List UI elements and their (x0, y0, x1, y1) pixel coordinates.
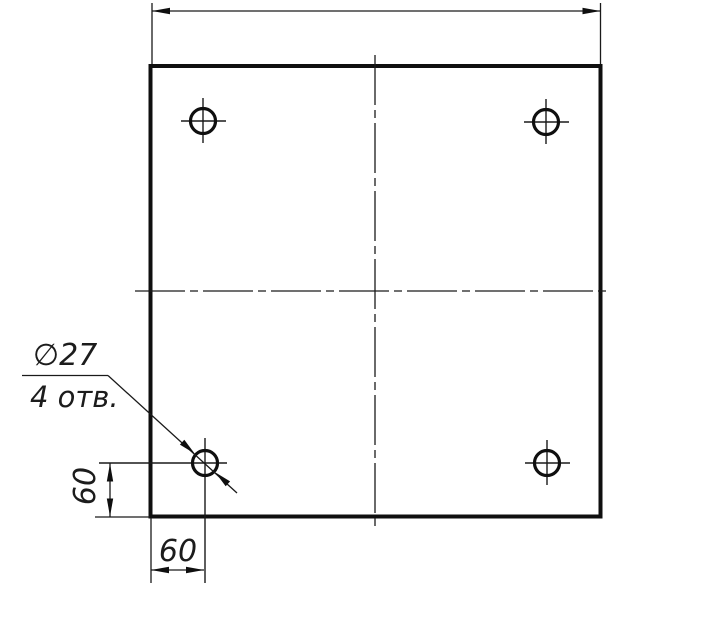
hole-top-left (181, 98, 226, 143)
arrowhead-right-icon (583, 8, 601, 14)
arrowhead-left-icon (152, 8, 170, 14)
dimension-top-width (152, 3, 601, 66)
dimension-value-bottom: 60 (159, 534, 197, 569)
hole-top-right (524, 99, 569, 144)
technical-drawing-canvas: ∅27 4 отв. 60 60 (0, 0, 713, 631)
dimension-left-offset-60: 60 (68, 463, 150, 517)
dimension-value-left: 60 (68, 467, 103, 505)
plate-drawing: ∅27 4 отв. 60 60 (0, 0, 713, 631)
callout-diameter-text: ∅27 (33, 338, 97, 373)
hole-bottom-right (525, 440, 570, 485)
arrowhead-up-icon (107, 464, 113, 482)
callout-count-text: 4 отв. (30, 380, 119, 414)
dimension-bottom-offset-60: 60 (151, 518, 204, 583)
arrowhead-down-icon (107, 499, 113, 517)
leader-arrowhead-upper-icon (180, 440, 195, 454)
